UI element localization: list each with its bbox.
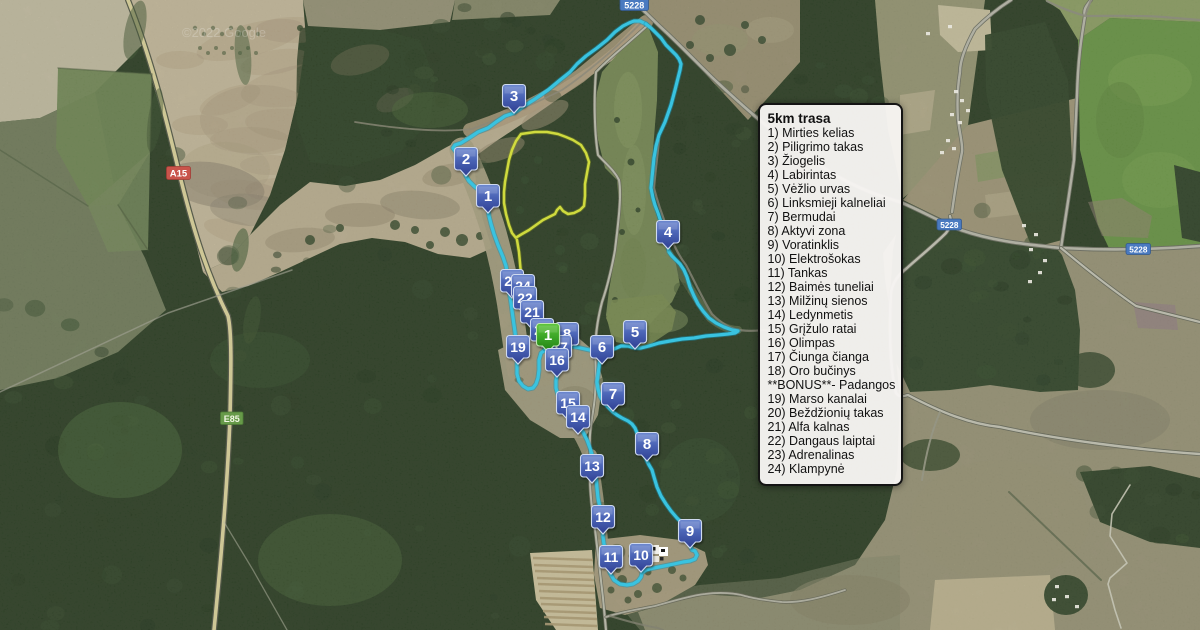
svg-text:21: 21 <box>524 304 540 320</box>
svg-text:5228: 5228 <box>624 0 644 10</box>
svg-text:6: 6 <box>598 339 606 356</box>
svg-text:1: 1 <box>544 327 552 344</box>
svg-text:12: 12 <box>595 509 611 525</box>
svg-text:E85: E85 <box>224 414 240 424</box>
svg-text:4: 4 <box>664 224 673 241</box>
svg-text:2: 2 <box>462 151 470 168</box>
svg-text:13: 13 <box>584 458 600 474</box>
svg-text:14: 14 <box>570 409 586 425</box>
svg-text:7: 7 <box>609 386 617 403</box>
svg-text:1: 1 <box>484 188 492 205</box>
svg-text:8: 8 <box>643 436 651 453</box>
svg-text:5228: 5228 <box>1129 245 1148 254</box>
svg-text:19: 19 <box>510 339 526 355</box>
svg-text:3: 3 <box>510 88 518 105</box>
svg-text:A15: A15 <box>170 169 188 180</box>
svg-text:5: 5 <box>631 324 639 341</box>
svg-text:10: 10 <box>633 547 649 563</box>
svg-text:11: 11 <box>604 549 619 565</box>
svg-text:5228: 5228 <box>940 221 959 230</box>
svg-text:9: 9 <box>686 523 694 540</box>
svg-text:16: 16 <box>549 352 565 368</box>
svg-text:©2022 Google: ©2022 Google <box>182 25 266 40</box>
